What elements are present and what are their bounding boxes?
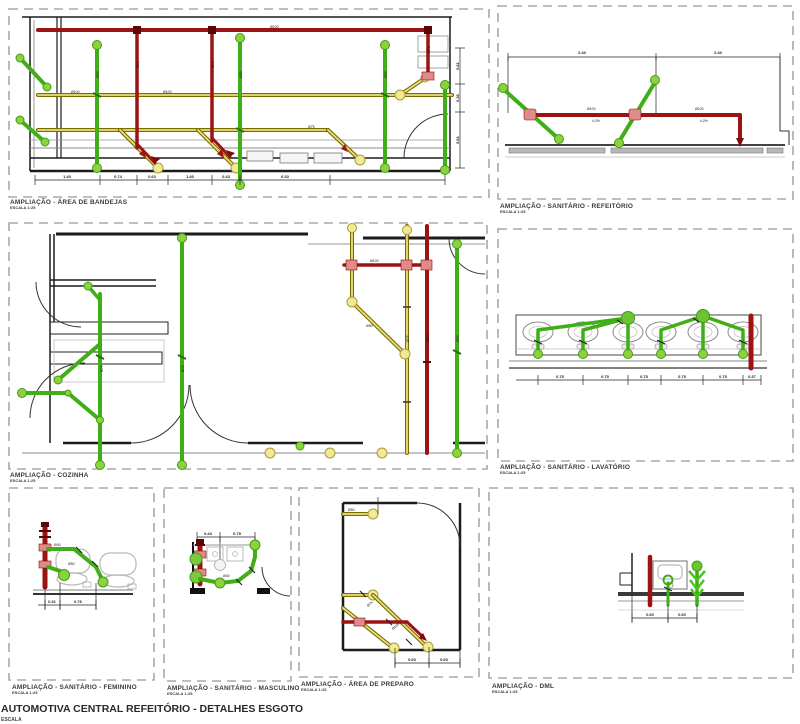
- panel-lavatorio-drawing: 0.75 0.75 0.75 0.75 0.75 0.37: [497, 228, 794, 462]
- dim-label: 0.61: [455, 61, 460, 70]
- panel-scale: ESCALA 1:25: [167, 692, 300, 697]
- pipe-label: Ø75: [308, 125, 315, 129]
- panel-scale: ESCALA 1:25: [301, 688, 414, 693]
- panel-masculino-drawing: 0.43 0.75: [163, 487, 292, 682]
- dim-label: 0.75: [678, 374, 687, 379]
- panel-masculino-caption: AMPLIAÇÃO - SANITÁRIO - MASCULINO ESCALA…: [167, 685, 300, 697]
- drawing-sheet: Ø100 Ø100 Ø100 Ø75 Ø75 Ø75 Ø50 Ø50 Ø50 Ø…: [0, 0, 800, 724]
- dim-label: 0.43: [222, 174, 231, 179]
- panel-scale: ESCALA 1:25: [12, 691, 137, 696]
- pipe-size-labels: Ø100 Ø100 Ø100 Ø75 Ø75 Ø75 Ø50 Ø50 Ø50 Ø…: [71, 25, 431, 129]
- dim-label: 0.60: [408, 657, 417, 662]
- pipe-label: Ø50: [456, 335, 460, 342]
- panel-scale: ESCALA 1:25: [10, 479, 89, 484]
- pipe-label: Ø50: [96, 71, 100, 78]
- dim-label: 0.36: [455, 93, 460, 102]
- pipe-size-labels: Ø40: [223, 574, 230, 578]
- pipe-label: Ø75: [211, 61, 215, 68]
- pipe-label: Ø50: [366, 324, 373, 328]
- pipe-label: Ø100: [370, 259, 379, 263]
- pipe-label: Ø100: [270, 25, 279, 29]
- pipe-label: Ø75: [427, 46, 431, 53]
- dim-label: 1.40: [186, 174, 195, 179]
- panel-scale: ESCALA 1:25: [500, 210, 633, 215]
- dim-label: 0.61: [455, 135, 460, 144]
- dim-label: 0.75: [233, 531, 242, 536]
- dim-label: 0.75: [640, 374, 649, 379]
- pipe-label: Ø75: [136, 61, 140, 68]
- dimensions: 0.43 0.75: [197, 531, 255, 565]
- dim-label: 0.31: [48, 599, 57, 604]
- panel-cozinha-drawing: Ø75 Ø75 Ø75 Ø100 Ø50 Ø100 Ø50: [8, 222, 488, 470]
- dim-label: 0.75: [556, 374, 565, 379]
- pipe-label: Ø50: [239, 71, 243, 78]
- dim-label: 0.60: [440, 657, 449, 662]
- green-pipes: [664, 561, 706, 605]
- pipe-label: Ø50: [68, 562, 75, 566]
- walls: [505, 57, 789, 157]
- pipe-label: Ø40: [54, 543, 61, 547]
- panel-bandejas-caption: AMPLIAÇÃO - ÁREA DE BANDEJAS ESCALA 1:25: [10, 199, 127, 211]
- pipe-label: Ø50: [348, 508, 355, 512]
- walls: [22, 234, 485, 453]
- pipe-label: Ø75: [181, 365, 185, 372]
- panel-sanitario-refeitorio-drawing: 2.40 2.40 Ø100 Ø100 i=2%: [497, 5, 794, 200]
- sheet-title: AUTOMOTIVA CENTRAL REFEITÓRIO - DETALHES…: [1, 703, 303, 715]
- pipe-label: i=2%: [592, 119, 600, 123]
- dim-label: 0.75: [601, 374, 610, 379]
- pipe-label: Ø75: [406, 335, 410, 342]
- panel-dml-drawing: 0.60 0.60: [488, 487, 794, 679]
- panel-preparo-drawing: Ø75 Ø100 Ø50 0.60 0.60: [298, 487, 480, 678]
- pipe-label: Ø100: [695, 107, 704, 111]
- pipe-label: Ø75: [100, 365, 104, 372]
- panel-preparo-caption: AMPLIAÇÃO - ÁREA DE PREPARO ESCALA 1:25: [301, 681, 414, 693]
- red-pipes: [39, 522, 51, 587]
- dim-label: 0.60: [646, 612, 655, 617]
- fixtures: [207, 547, 243, 571]
- pipe-label: Ø100: [71, 90, 80, 94]
- dim-label: 1.40: [63, 174, 72, 179]
- olive-pipes: [265, 224, 412, 459]
- olive-pipes: [343, 497, 433, 653]
- panel-sanitario-refeitorio-caption: AMPLIAÇÃO - SANITÁRIO - REFEITÓRIO ESCAL…: [500, 203, 633, 215]
- panel-bandejas-drawing: Ø100 Ø100 Ø100 Ø75 Ø75 Ø75 Ø50 Ø50 Ø50 Ø…: [8, 8, 490, 198]
- panel-scale: ESCALA 1:25: [10, 206, 127, 211]
- dimensions: 0.75 0.75 0.75 0.75 0.75 0.37: [516, 374, 761, 385]
- dim-label: 2.40: [578, 50, 587, 55]
- pipe-label: Ø100: [587, 107, 596, 111]
- dim-label: 0.33: [281, 174, 290, 179]
- pipe-label: i=2%: [700, 119, 708, 123]
- panel-scale: ESCALA 1:25: [492, 690, 554, 695]
- panel-lavatorio-caption: AMPLIAÇÃO - SANITÁRIO - LAVATÓRIO ESCALA…: [500, 464, 630, 476]
- pipe-label: Ø100: [426, 333, 430, 342]
- panel-dml-caption: AMPLIAÇÃO - DML ESCALA 1:25: [492, 683, 554, 695]
- panel-feminino-caption: AMPLIAÇÃO - SANITÁRIO - FEMININO ESCALA …: [12, 684, 137, 696]
- walls: [509, 315, 767, 368]
- dim-label: 0.63: [148, 174, 157, 179]
- dim-label: 0.74: [114, 174, 123, 179]
- dimensions: 0.60 0.60: [632, 594, 697, 623]
- dim-label: 0.76: [74, 599, 83, 604]
- dim-label: 0.60: [678, 612, 687, 617]
- dim-label: 0.75: [719, 374, 728, 379]
- dim-label: 0.37: [748, 374, 757, 379]
- green-pipes: [499, 76, 660, 148]
- pipe-label: Ø100: [163, 90, 172, 94]
- panel-scale: ESCALA 1:25: [500, 471, 630, 476]
- walls: [33, 590, 133, 594]
- dim-label: 0.43: [204, 531, 213, 536]
- dim-label: 2.40: [714, 50, 723, 55]
- pipe-label: Ø75: [366, 600, 374, 607]
- panel-feminino-drawing: Ø40 Ø50 0.31 0.76: [8, 487, 155, 681]
- pipe-label: Ø40: [223, 574, 230, 578]
- panel-cozinha-caption: AMPLIAÇÃO - COZINHA ESCALA 1:25: [10, 472, 89, 484]
- walls: [343, 503, 460, 650]
- pipe-label: Ø50: [384, 71, 388, 78]
- sheet-subtitle: ESCALA: [1, 717, 22, 723]
- walls: [618, 553, 744, 610]
